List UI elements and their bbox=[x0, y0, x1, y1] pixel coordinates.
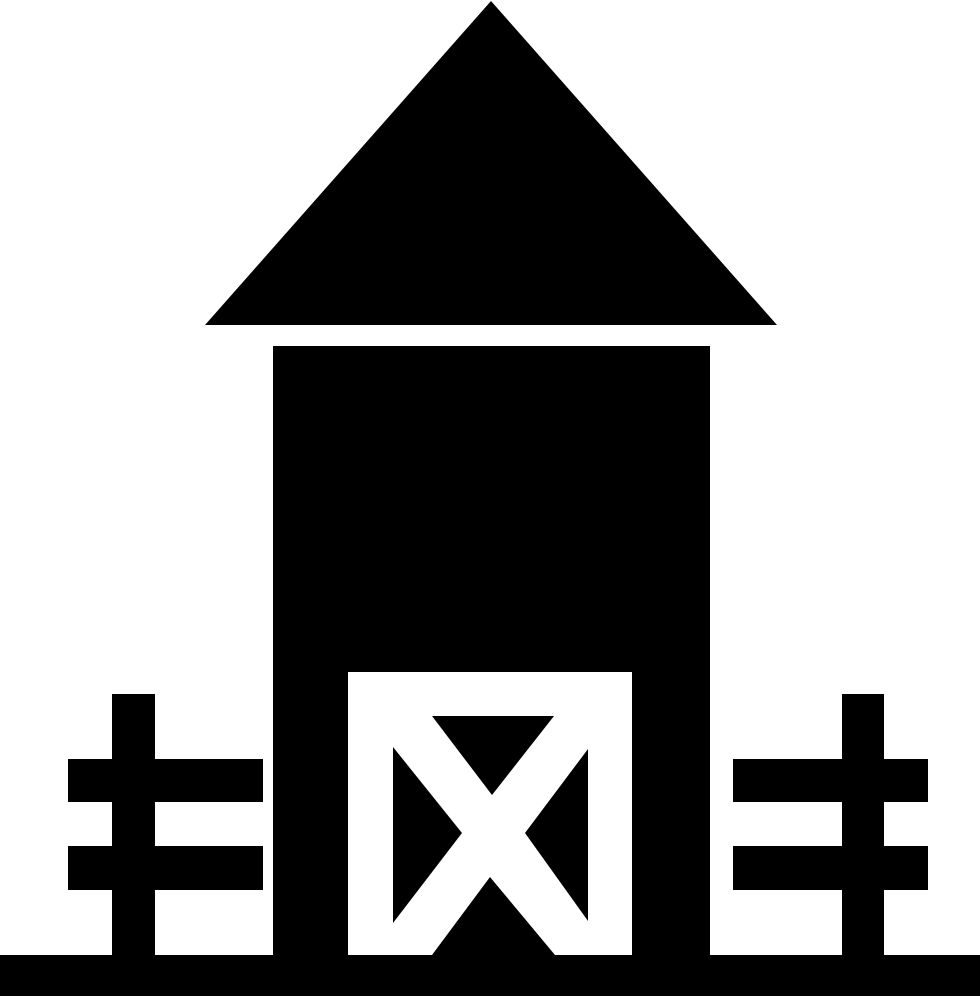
right-fence-top-rail-shape bbox=[733, 759, 928, 802]
barn-roof-shape bbox=[205, 1, 777, 325]
left-fence-top-rail-shape bbox=[68, 759, 263, 802]
barn-icon bbox=[0, 0, 980, 1000]
right-fence-post-shape bbox=[842, 694, 884, 996]
left-fence-post-shape bbox=[112, 694, 155, 996]
ground-bar-shape bbox=[0, 955, 980, 996]
left-fence-bottom-rail-shape bbox=[68, 846, 263, 890]
icon-canvas bbox=[0, 0, 980, 1000]
right-fence-bottom-rail-shape bbox=[733, 846, 928, 890]
